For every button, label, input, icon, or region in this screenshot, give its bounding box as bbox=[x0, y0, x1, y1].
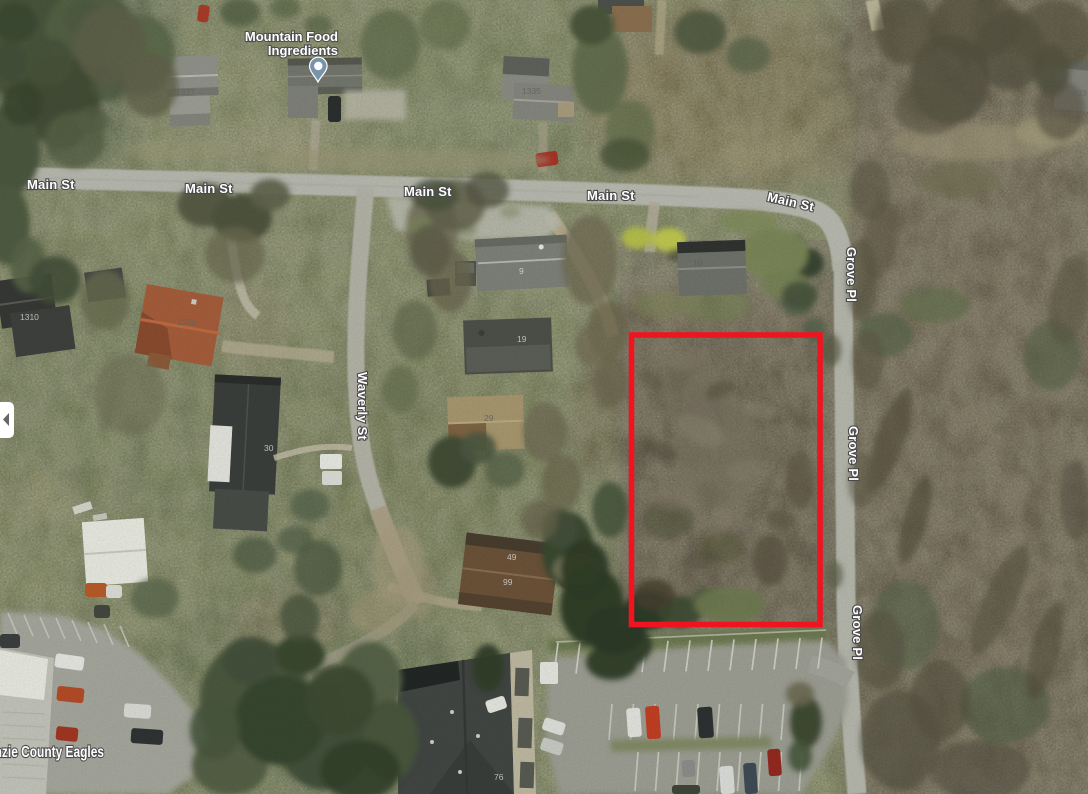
svg-text:99: 99 bbox=[503, 577, 513, 587]
svg-text:29: 29 bbox=[484, 413, 494, 423]
svg-text:Grove Pl: Grove Pl bbox=[850, 605, 865, 660]
svg-text:Main St: Main St bbox=[185, 181, 233, 196]
svg-text:Grove Pl: Grove Pl bbox=[844, 247, 859, 302]
svg-text:Waverly St: Waverly St bbox=[355, 372, 370, 440]
svg-text:1333: 1333 bbox=[1068, 88, 1087, 98]
svg-text:Main St: Main St bbox=[587, 188, 635, 203]
svg-text:1320: 1320 bbox=[177, 317, 196, 327]
svg-text:Grove Pl: Grove Pl bbox=[846, 426, 861, 481]
svg-text:76: 76 bbox=[494, 772, 504, 782]
svg-text:19: 19 bbox=[517, 334, 527, 344]
svg-text:enzie County Eagles: enzie County Eagles bbox=[0, 744, 104, 761]
svg-text:1327: 1327 bbox=[176, 87, 195, 97]
svg-text:10: 10 bbox=[693, 258, 703, 268]
svg-text:1310: 1310 bbox=[20, 312, 39, 322]
svg-text:Main St: Main St bbox=[27, 177, 75, 192]
svg-text:Ingredients: Ingredients bbox=[268, 43, 338, 58]
svg-text:Mountain Food: Mountain Food bbox=[245, 29, 338, 44]
svg-text:1335: 1335 bbox=[522, 86, 541, 96]
svg-text:49: 49 bbox=[507, 552, 517, 562]
svg-text:30: 30 bbox=[264, 443, 274, 453]
svg-text:9: 9 bbox=[519, 266, 524, 276]
svg-text:Main St: Main St bbox=[404, 184, 452, 199]
